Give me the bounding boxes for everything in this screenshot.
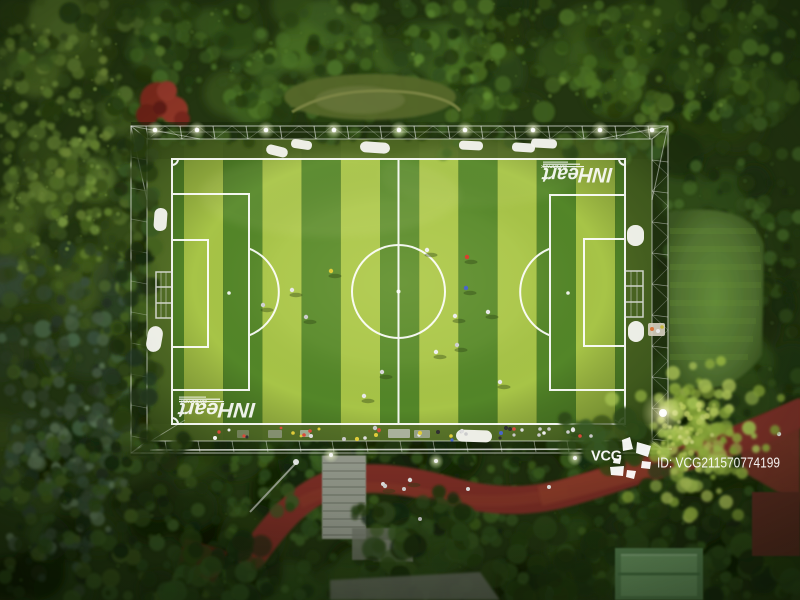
svg-text:ID: VCG211570774199: ID: VCG211570774199 — [657, 455, 780, 472]
svg-text:VCG: VCG — [591, 449, 622, 465]
